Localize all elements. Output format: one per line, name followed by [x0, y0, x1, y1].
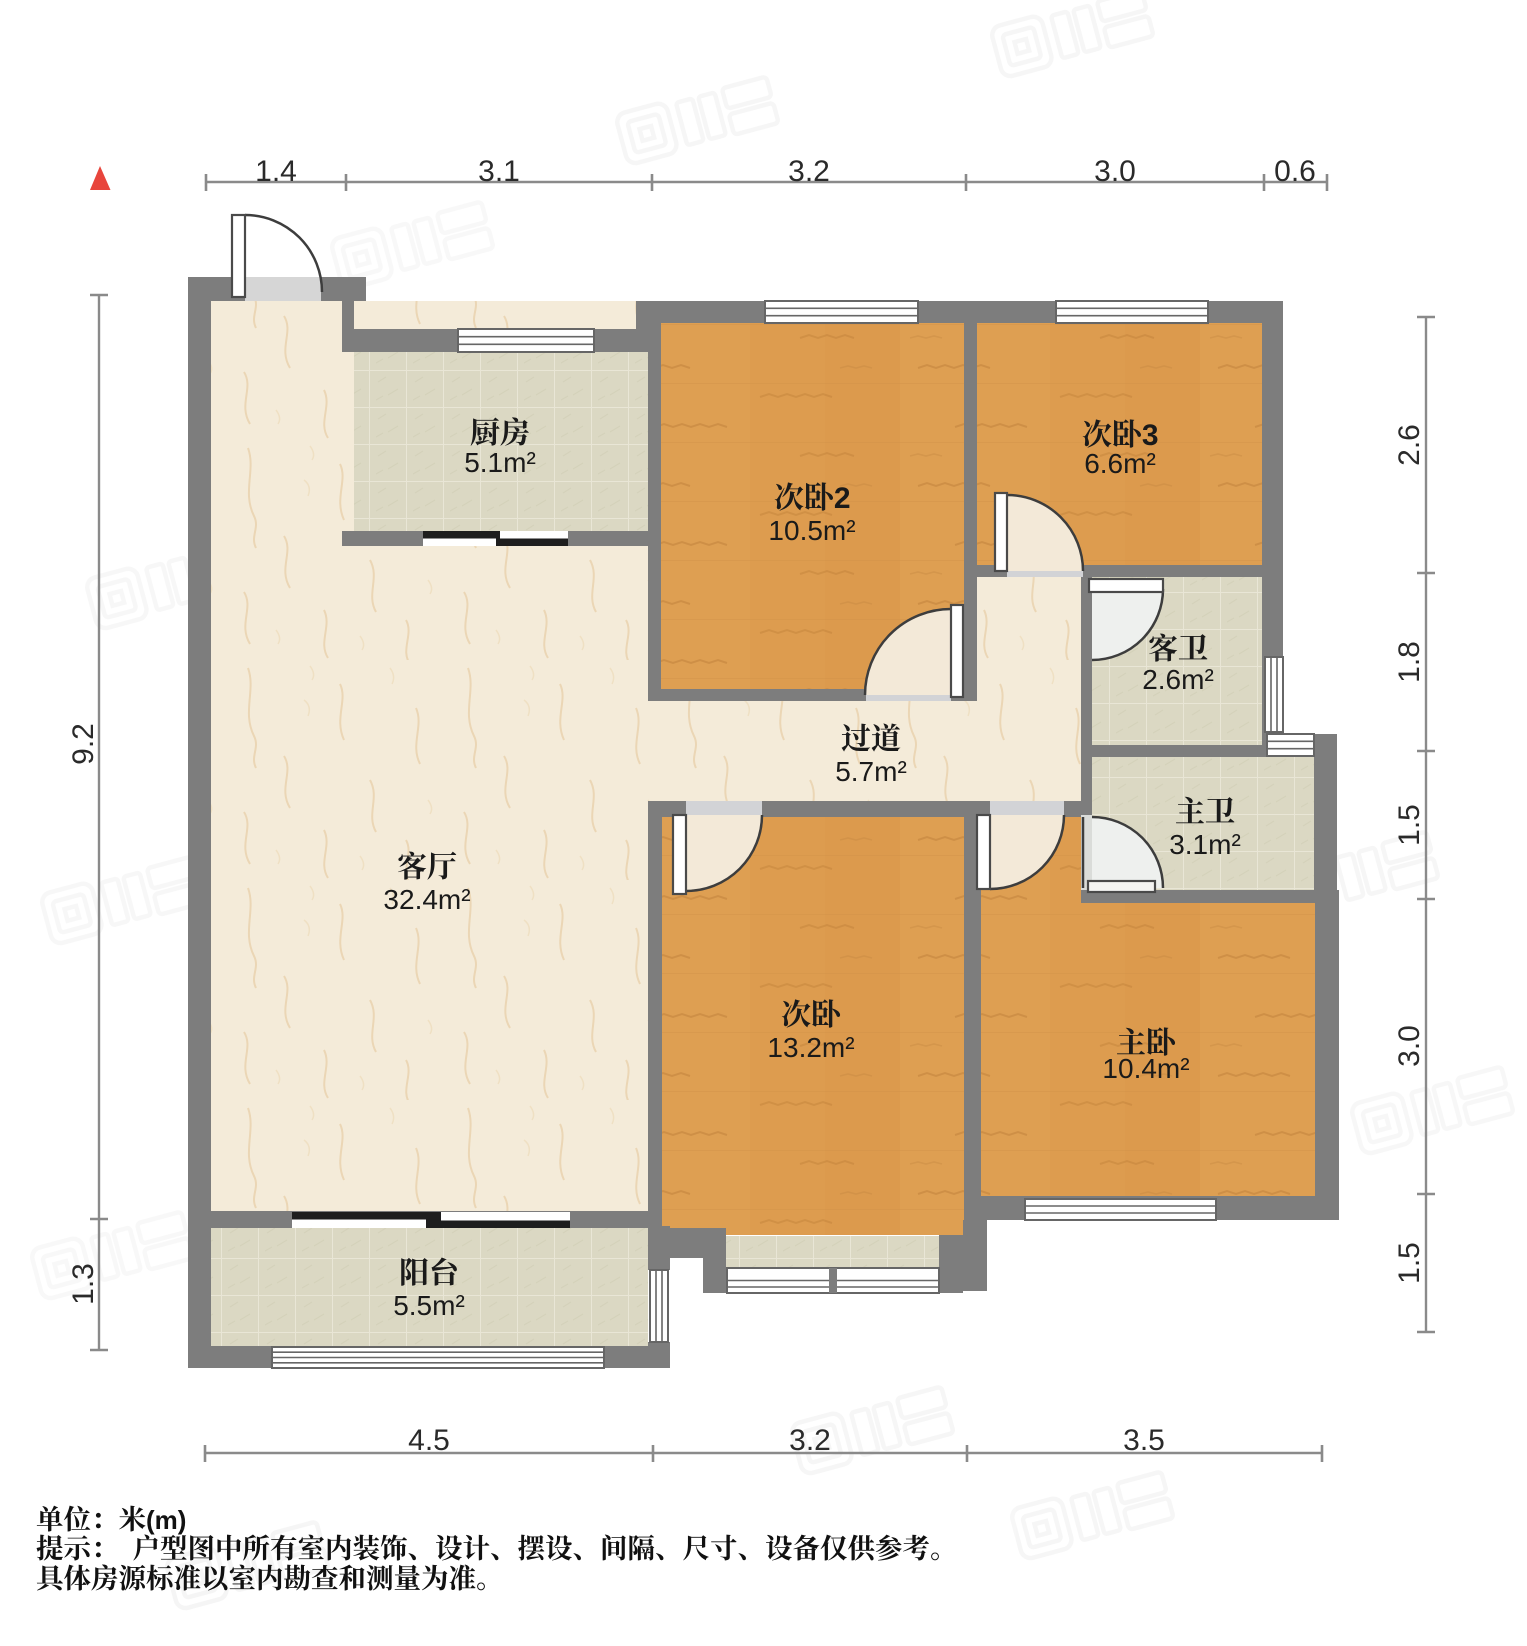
svg-text:32.4m²: 32.4m² — [383, 884, 470, 915]
svg-text:1.5: 1.5 — [1393, 804, 1426, 846]
svg-text:5.5m²: 5.5m² — [393, 1290, 465, 1321]
svg-text:(m): (m) — [146, 1505, 186, 1535]
svg-text:1.3: 1.3 — [67, 1263, 100, 1305]
svg-text:2: 2 — [834, 482, 851, 515]
svg-text:3.2: 3.2 — [789, 1424, 831, 1457]
svg-text:3.0: 3.0 — [1393, 1025, 1426, 1067]
svg-text:0.6: 0.6 — [1274, 155, 1316, 188]
svg-text:1.4: 1.4 — [255, 155, 297, 188]
svg-text:3.0: 3.0 — [1094, 155, 1136, 188]
svg-text:3.2: 3.2 — [788, 155, 830, 188]
svg-text:3.1: 3.1 — [478, 155, 520, 188]
svg-text:10.4m²: 10.4m² — [1102, 1053, 1189, 1084]
svg-text:6.6m²: 6.6m² — [1084, 448, 1156, 479]
svg-text:1.5: 1.5 — [1393, 1242, 1426, 1284]
svg-text:2.6: 2.6 — [1393, 424, 1426, 466]
svg-text:5.7m²: 5.7m² — [835, 756, 907, 787]
svg-text:3.5: 3.5 — [1123, 1424, 1165, 1457]
svg-text:3.1m²: 3.1m² — [1169, 829, 1241, 860]
svg-text:2.6m²: 2.6m² — [1142, 664, 1214, 695]
svg-text:1.8: 1.8 — [1393, 641, 1426, 683]
svg-text:13.2m²: 13.2m² — [767, 1032, 854, 1063]
svg-text:9.2: 9.2 — [67, 723, 100, 765]
svg-text:5.1m²: 5.1m² — [464, 447, 536, 478]
svg-text:10.5m²: 10.5m² — [768, 515, 855, 546]
svg-text:4.5: 4.5 — [408, 1424, 450, 1457]
